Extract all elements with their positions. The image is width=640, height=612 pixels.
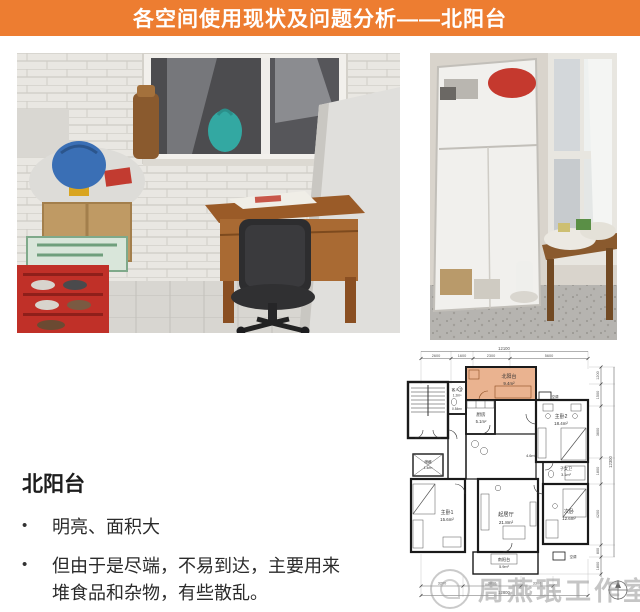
- dim-top-seg-3: 2300: [487, 354, 495, 358]
- bullet-marker: •: [22, 514, 52, 537]
- floor-plan: 12100 2600 1600 2300 5600 1200 1500 3600…: [403, 344, 640, 612]
- staircase: [411, 385, 445, 438]
- dim-bottom-overall: 12800: [498, 590, 510, 595]
- bullet-item-1: • 明亮、面积大: [22, 514, 417, 541]
- area-south-balcony: 5.9m²: [499, 565, 509, 569]
- bullet-item-2: • 但由于是尽端，不易到达，主要用来堆食品和杂物，有些散乱。: [22, 553, 417, 607]
- label-storage: 储藏: [424, 459, 432, 464]
- analysis-heading: 北阳台: [22, 468, 417, 498]
- dim-top-seg-2: 1600: [458, 354, 466, 358]
- label-ac-north: 空调: [552, 394, 559, 399]
- red-bag: [488, 68, 536, 98]
- dim-top-seg-4: 5600: [545, 354, 553, 358]
- area-closet: 0.54m²: [452, 407, 462, 411]
- dim-right-overall: 12300: [608, 456, 613, 468]
- area-kids-bath: 3.1m²: [561, 473, 571, 477]
- dim-right-balcony: 1800: [596, 562, 600, 570]
- label-ac-south: 空调: [570, 554, 577, 559]
- photo-left-graphic: [17, 53, 400, 333]
- dim-top-seg-1: 2600: [432, 354, 440, 358]
- area-north-balcony: 9.4m²: [503, 381, 515, 386]
- dim-bottom-seg-2: 3800: [488, 582, 496, 586]
- area-living: 21.8m²: [499, 520, 514, 525]
- bullet-marker: •: [22, 553, 52, 576]
- area-hall: 4.6m²: [526, 454, 536, 458]
- label-guest-bath: 客人卫: [452, 387, 463, 392]
- area-master1: 15.6m²: [440, 517, 454, 522]
- dim-right-seg-1: 1200: [596, 371, 600, 379]
- plastic-bag: [208, 110, 242, 152]
- bullet-text-1: 明亮、面积大: [52, 514, 160, 541]
- north-balcony-highlight: [466, 367, 536, 400]
- title-banner: 各空间使用现状及问题分析——北阳台: [0, 0, 640, 36]
- dim-right-seg-4: 1800: [596, 467, 600, 475]
- label-living: 起居厅: [498, 511, 514, 518]
- dim-bottom-seg-3: 3300: [533, 582, 541, 586]
- area-bedroom2: 12.6m²: [562, 516, 576, 521]
- label-master1: 主卧1: [441, 509, 454, 516]
- jar: [133, 85, 159, 159]
- page-title: 各空间使用现状及问题分析——北阳台: [133, 3, 507, 33]
- area-guest-bath: 1.2m²: [453, 394, 463, 398]
- area-kitchen: 5.1m²: [476, 419, 487, 424]
- dim-top-overall: 12100: [498, 346, 510, 351]
- area-master2: 18.4m²: [554, 421, 568, 426]
- dim-right-seg-2: 1500: [596, 391, 600, 399]
- area-storage: 1.4m²: [424, 466, 434, 470]
- label-bedroom2: 次卧: [564, 508, 574, 515]
- photo-north-balcony-cabinet: [430, 53, 617, 340]
- label-kids-bath: 子女卫: [560, 465, 572, 471]
- dim-right-seg-6: 800: [596, 548, 600, 554]
- dim-right-seg-3: 3600: [596, 428, 600, 436]
- label-master2: 主卧2: [555, 413, 568, 420]
- walls: [408, 382, 588, 574]
- dim-bottom-seg-1: 3200: [438, 582, 446, 586]
- dim-right-seg-5: 4200: [596, 510, 600, 518]
- compass-icon: [608, 580, 628, 600]
- label-south-balcony: 南阳台: [498, 556, 511, 563]
- analysis-block: 北阳台 • 明亮、面积大 • 但由于是尽端，不易到达，主要用来堆食品和杂物，有些…: [22, 468, 417, 612]
- label-kitchen: 厨房: [476, 411, 486, 418]
- label-north-balcony: 北阳台: [501, 373, 516, 380]
- photo-north-balcony-desk: [17, 53, 400, 333]
- slide: 各空间使用现状及问题分析——北阳台: [0, 0, 640, 612]
- bullet-text-2: 但由于是尽端，不易到达，主要用来堆食品和杂物，有些散乱。: [52, 553, 352, 607]
- photo-right-graphic: [430, 53, 617, 340]
